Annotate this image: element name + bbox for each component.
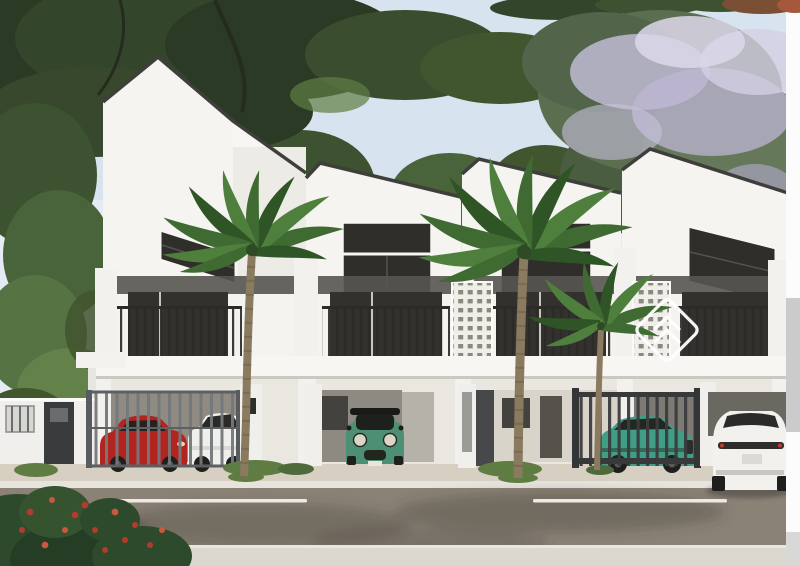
mirror: [399, 426, 404, 431]
license-plate: [742, 454, 762, 464]
carport-gate-unit1: [86, 390, 242, 468]
car-white-suv-rear: [706, 411, 794, 498]
lane-marking: [113, 499, 307, 503]
entry-door: [540, 396, 562, 458]
bumper-line: [716, 470, 784, 475]
curb: [0, 481, 800, 488]
carport-gate-unit4: [572, 388, 701, 468]
grille: [364, 450, 386, 460]
palm-trunk: [597, 330, 601, 470]
taillight: [778, 444, 782, 448]
lane-marking: [533, 499, 727, 503]
ground-window: [322, 396, 348, 430]
open-gate-leaf: [476, 390, 494, 466]
gate-pier: [304, 384, 322, 466]
property-photo: [0, 0, 800, 566]
roof: [350, 408, 400, 415]
carport-beam: [76, 352, 126, 368]
taillight-band: [718, 442, 784, 449]
taillight: [720, 444, 724, 448]
headlight: [384, 434, 397, 447]
slab-shadow-line: [95, 376, 788, 379]
breeze-block-screen: [452, 282, 492, 366]
pier-panel: [462, 392, 472, 452]
floor-slab-band: [95, 356, 788, 376]
mirror: [347, 426, 352, 431]
windshield: [356, 414, 394, 430]
rendering-canvas: [0, 0, 800, 566]
wall-cap: [0, 398, 96, 401]
door-panel: [50, 408, 68, 422]
license-plate: [368, 461, 382, 466]
photo-edge-strip: [786, 6, 800, 566]
headlight: [354, 434, 367, 447]
eave-shadow-band: [103, 276, 786, 294]
entry-door: [402, 392, 434, 462]
